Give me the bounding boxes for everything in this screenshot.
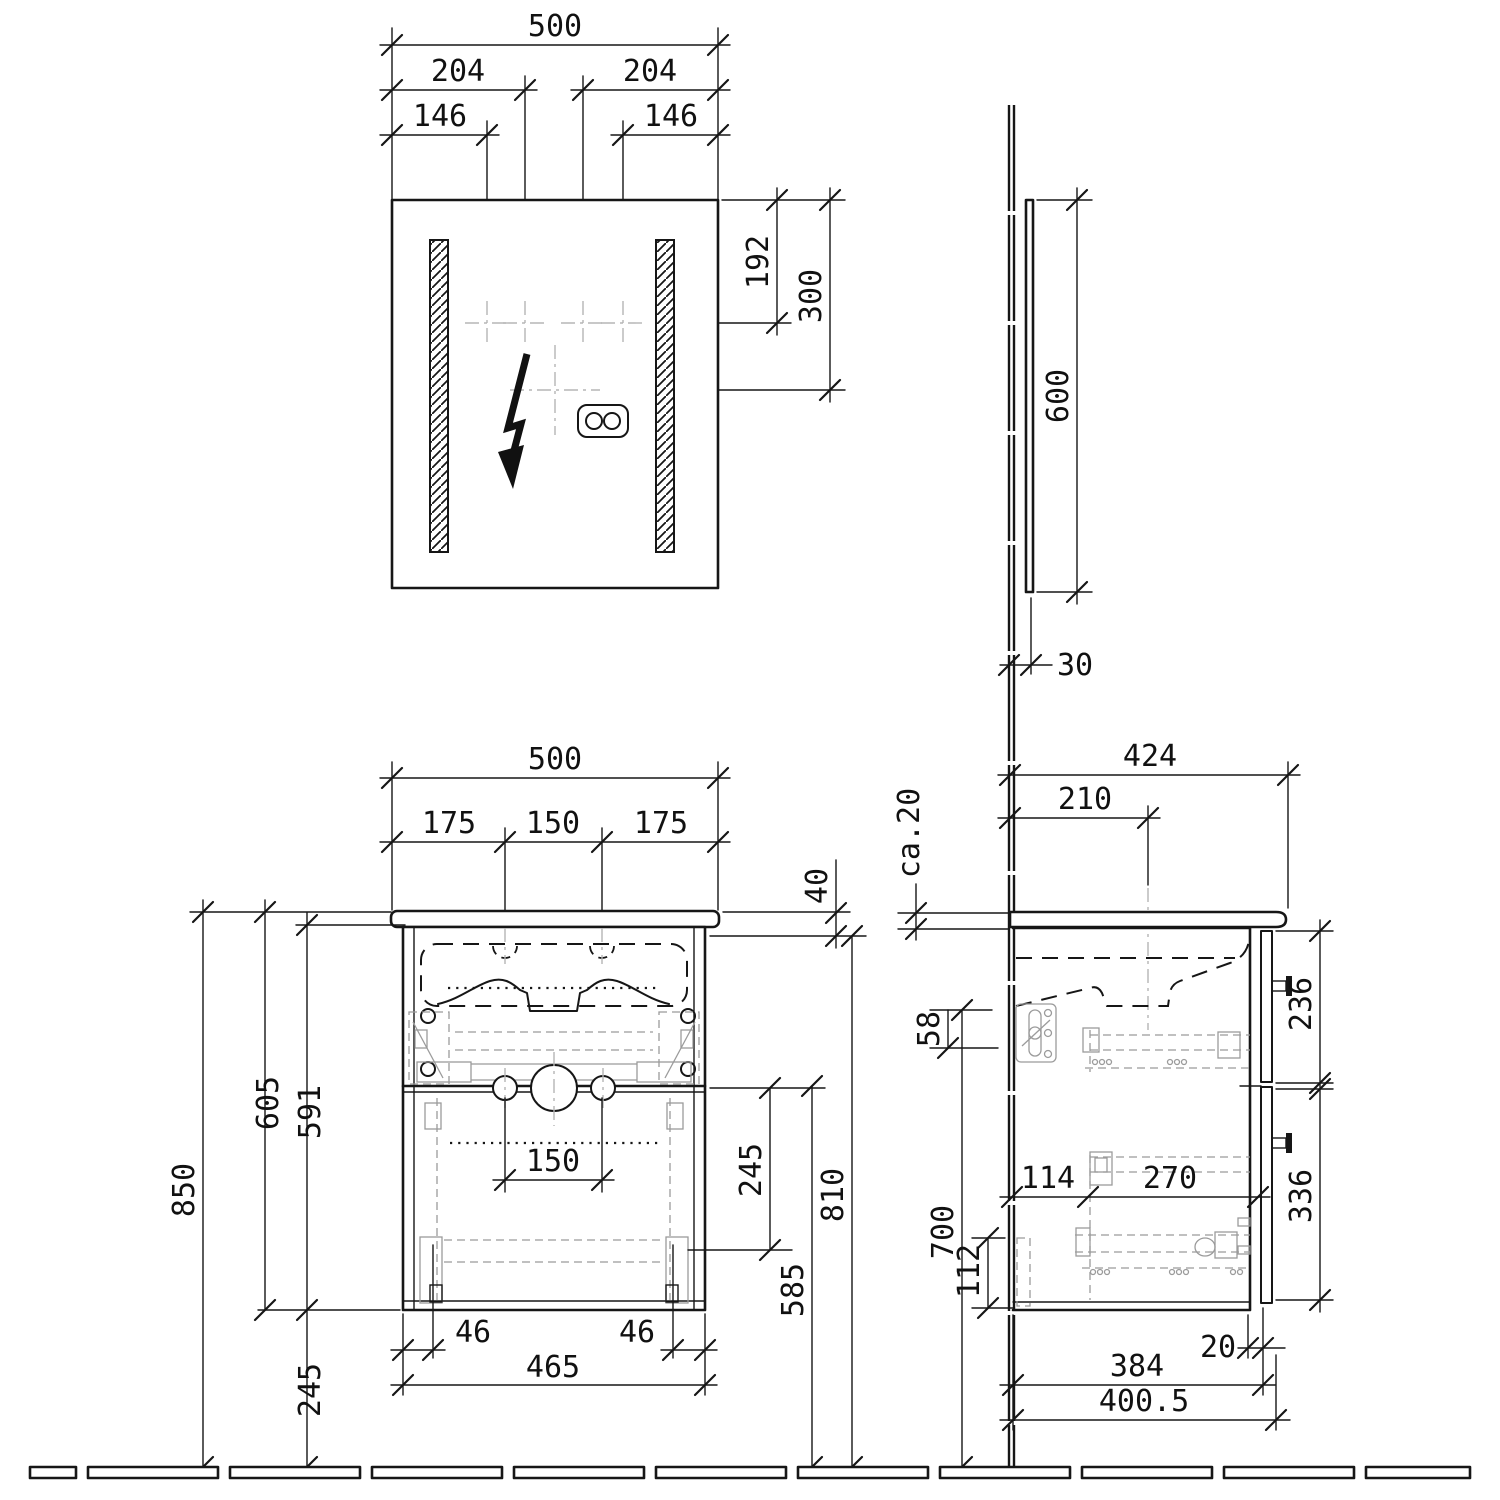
- side-basin-hidden: [1016, 941, 1249, 1006]
- dim-slide-length: 270: [1143, 1161, 1197, 1196]
- dim-mirror-hole-right: 146: [644, 99, 698, 134]
- dim-total-depth: 400.5: [1099, 1384, 1189, 1419]
- dim-drain-offset: 245: [734, 1143, 769, 1197]
- dim-cabinet-height: 605: [251, 1076, 286, 1130]
- mirror-side-dim-lines: [1000, 188, 1077, 665]
- vanity-front-view: 500 175 150 175 40: [167, 742, 998, 1477]
- dim-basin-thickness: 40: [800, 868, 835, 904]
- washbasin-top: [391, 911, 719, 927]
- dim-depth: 424: [1123, 739, 1177, 774]
- vanity-side-view: 424 210 ca.20: [892, 739, 1333, 1430]
- side-countertop: [1010, 912, 1286, 927]
- drawing-svg: 500 204 204 146 146 192 300: [0, 0, 1500, 1500]
- dim-mirror-center-left: 204: [431, 54, 485, 89]
- dim-mirror-depth: 30: [1057, 648, 1093, 683]
- dim-carcass-height: 591: [293, 1085, 328, 1139]
- vanity-front-dim-lines-left: [203, 900, 307, 1467]
- mirror-side-extensions: [1031, 200, 1092, 674]
- dim-drawer-front-bottom: 336: [1284, 1169, 1319, 1223]
- mirror-front-view: 500 204 204 146 146 192 300: [380, 9, 845, 588]
- dim-vanity-center: 150: [526, 806, 580, 841]
- dim-top-ca20: ca.20: [892, 788, 927, 878]
- dim-front-gap: 20: [1200, 1330, 1236, 1365]
- dim-back-panel: 112: [952, 1244, 987, 1298]
- mirror-side-profile: [1026, 200, 1033, 592]
- dim-body-width: 465: [526, 1350, 580, 1385]
- dim-drain-spacing: 150: [526, 1144, 580, 1179]
- dim-drawer-front-top: 236: [1284, 977, 1319, 1031]
- dim-foot-right: 46: [619, 1315, 655, 1350]
- dim-bracket-58: 58: [912, 1011, 947, 1047]
- dim-mirror-hole-left: 146: [413, 99, 467, 134]
- dim-total-height: 850: [167, 1163, 202, 1217]
- floor-line: [30, 1467, 1470, 1478]
- dim-lower-height: 585: [776, 1263, 811, 1317]
- dim-mirror-height: 600: [1041, 369, 1076, 423]
- dim-vanity-width: 500: [528, 742, 582, 777]
- vanity-front-ticks-right: [760, 926, 972, 1477]
- mirror-side-ticks: [999, 190, 1087, 675]
- dim-foot-left: 46: [455, 1315, 491, 1350]
- dim-mirror-v300: 300: [794, 269, 829, 323]
- dim-mirror-v192: 192: [741, 235, 776, 289]
- dim-mirror-center-right: 204: [623, 54, 677, 89]
- wall-line: [1009, 105, 1014, 1467]
- drawer-front-top: [1261, 931, 1272, 1082]
- dim-drain-depth: 210: [1058, 782, 1112, 817]
- side-cabinet-body: [1013, 928, 1261, 1310]
- dim-vanity-right: 175: [634, 806, 688, 841]
- dim-vanity-left: 175: [422, 806, 476, 841]
- wall-bracket: [1016, 1004, 1056, 1062]
- dim-under-height: 810: [816, 1168, 851, 1222]
- dim-body-depth: 384: [1110, 1349, 1164, 1384]
- dim-mirror-width: 500: [528, 9, 582, 44]
- drawer-front-bottom: [1261, 1087, 1272, 1303]
- side-top-slides: [1083, 1028, 1252, 1072]
- technical-drawing-canvas: 500 204 204 146 146 192 300: [0, 0, 1500, 1500]
- dim-slide-back: 114: [1021, 1161, 1075, 1196]
- dim-floor-clearance: 245: [293, 1363, 328, 1417]
